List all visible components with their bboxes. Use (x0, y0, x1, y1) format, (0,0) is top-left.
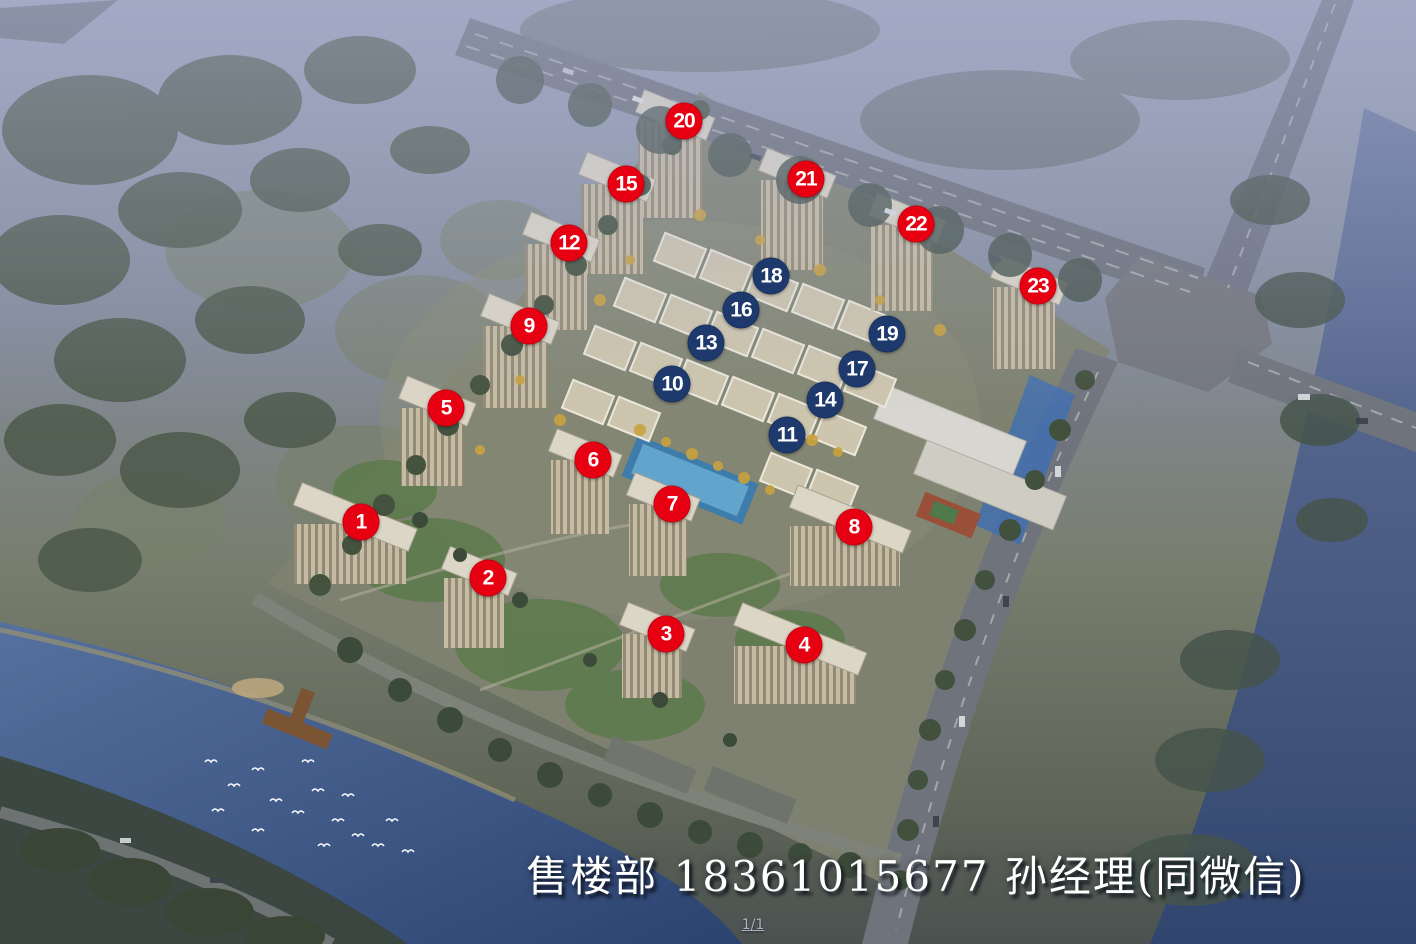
building-marker-7: 7 (654, 486, 691, 523)
building-marker-16: 16 (722, 292, 759, 329)
building-marker-14: 14 (806, 381, 843, 418)
building-marker-2: 2 (469, 560, 506, 597)
building-marker-12: 12 (550, 224, 587, 261)
page-indicator: 1/1 (718, 916, 788, 936)
building-marker-17: 17 (838, 351, 875, 388)
building-marker-21: 21 (787, 160, 824, 197)
aerial-rendering-image: 1234567891011121314151617181920212223 售楼… (0, 0, 1416, 944)
building-marker-1: 1 (342, 504, 379, 541)
building-marker-8: 8 (835, 509, 872, 546)
building-marker-3: 3 (647, 615, 684, 652)
building-marker-15: 15 (608, 165, 645, 202)
building-marker-9: 9 (511, 307, 548, 344)
building-marker-11: 11 (769, 416, 806, 453)
building-marker-22: 22 (898, 206, 935, 243)
building-marker-6: 6 (575, 442, 612, 479)
building-marker-10: 10 (654, 366, 691, 403)
building-marker-18: 18 (753, 258, 790, 295)
building-marker-19: 19 (868, 315, 905, 352)
building-marker-4: 4 (786, 627, 823, 664)
sales-caption: 售楼部 18361015677 孙经理(同微信) (416, 851, 1416, 904)
building-marker-5: 5 (428, 389, 465, 426)
building-marker-20: 20 (666, 103, 703, 140)
building-marker-13: 13 (688, 324, 725, 361)
marker-layer: 1234567891011121314151617181920212223 (0, 0, 1416, 944)
building-marker-23: 23 (1020, 268, 1057, 305)
